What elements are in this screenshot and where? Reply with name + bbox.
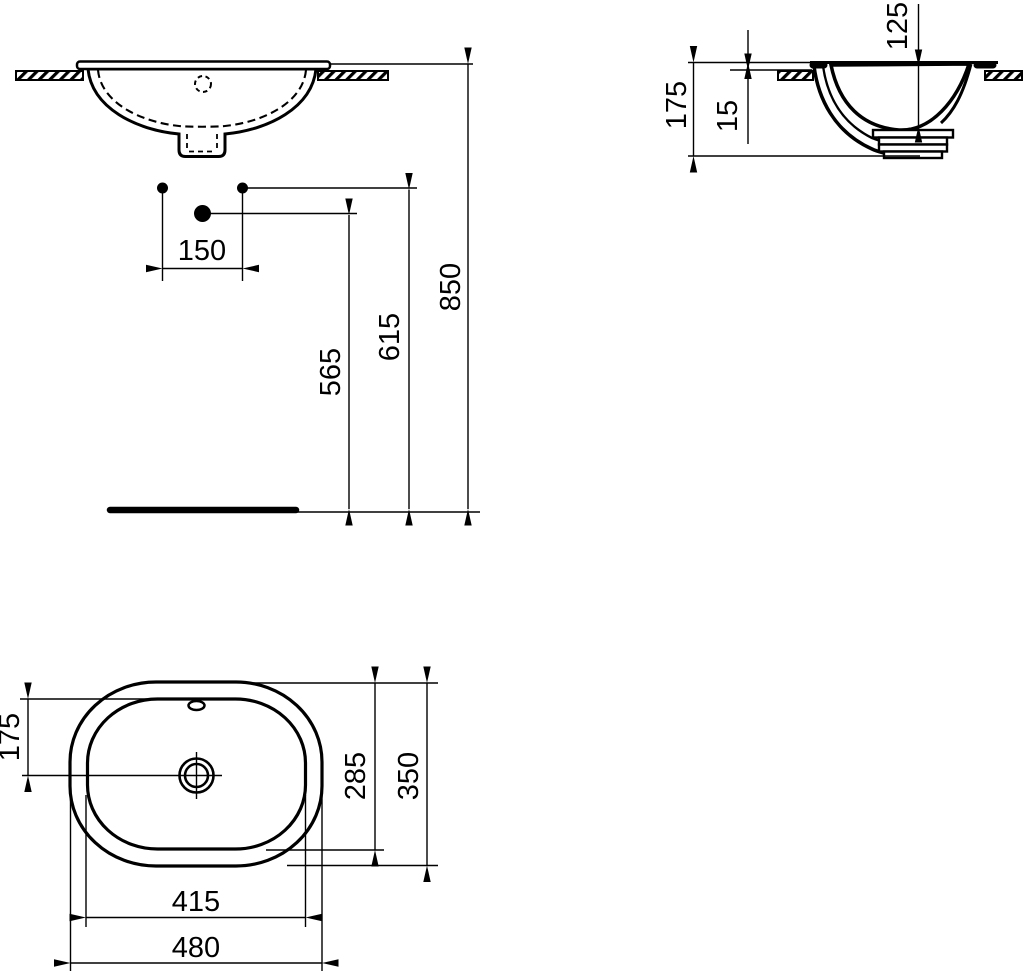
front-bowl-outline [88, 69, 316, 157]
front-view [16, 62, 480, 513]
dim-label-drain-offset: 175 [0, 697, 27, 777]
dim-label-supply-height: 615 [373, 297, 407, 377]
side-countertop-left [778, 71, 813, 80]
dim-label-overall-width: 350 [392, 736, 426, 816]
technical-drawing-page: 150 565 615 850 175 15 125 175 285 350 4… [0, 0, 1024, 972]
dim-label-overall-length: 480 [156, 931, 236, 965]
dim-label-worktop-height: 850 [434, 247, 468, 327]
dim-label-rim-above-top: 15 [711, 76, 745, 156]
dim-label-bowl-depth: 125 [881, 0, 915, 66]
supply-dot-left [157, 183, 168, 194]
dim-label-inner-width: 285 [339, 736, 373, 816]
drawing-canvas [0, 0, 1024, 972]
plan-view [20, 682, 438, 971]
dim-label-basin-height: 175 [660, 65, 694, 145]
dim-label-waste-height: 565 [314, 332, 348, 412]
front-countertop-right [318, 71, 388, 80]
dim-label-inner-length: 415 [156, 885, 236, 919]
side-countertop-right [985, 71, 1022, 80]
front-basin-rim [77, 62, 330, 70]
front-countertop-left [16, 71, 83, 80]
plan-overflow-hole [189, 701, 205, 710]
dim-label-tap-spacing: 150 [162, 234, 242, 268]
side-bowl-interior [831, 64, 969, 130]
waste-ring-4 [884, 152, 942, 159]
